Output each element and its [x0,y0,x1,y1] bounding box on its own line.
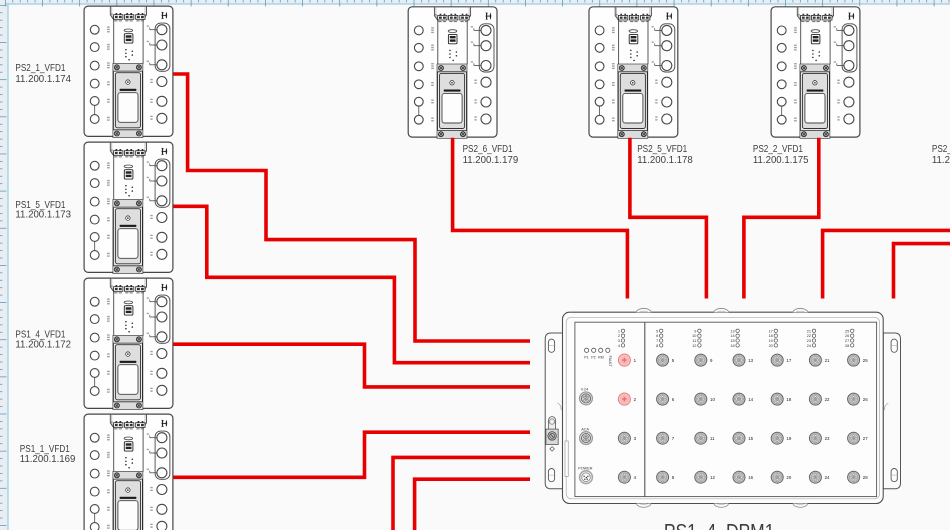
svg-text:25: 25 [863,358,868,363]
svg-text:17: 17 [786,358,791,363]
svg-text:10: 10 [692,334,696,338]
svg-text:24: 24 [825,475,830,480]
svg-text:28: 28 [863,475,868,480]
svg-text:22: 22 [807,334,811,338]
svg-text:11: 11 [710,436,715,441]
svg-text:28: 28 [845,344,849,348]
svg-text:8: 8 [656,344,658,348]
svg-text:13: 13 [748,358,753,363]
svg-text:19: 19 [786,436,791,441]
svg-text:P1: P1 [584,355,588,359]
svg-text:V.24: V.24 [581,388,588,392]
svg-text:12: 12 [692,344,696,348]
svg-text:PS2_6_VFD1: PS2_6_VFD1 [463,144,513,155]
svg-text:PS2_1_VFD1: PS2_1_VFD1 [15,63,65,74]
svg-text:11.200.1.172: 11.200.1.172 [15,339,71,350]
svg-text:14: 14 [730,334,734,338]
svg-text:3: 3 [618,339,620,343]
svg-text:2: 2 [618,334,620,338]
svg-text:1: 1 [618,329,620,333]
svg-text:11: 11 [692,339,696,343]
svg-text:5: 5 [656,329,658,333]
svg-text:11.200.1.175: 11.200.1.175 [753,155,809,166]
svg-text:26: 26 [863,397,868,402]
svg-text:11.200.1.179: 11.200.1.179 [463,155,519,166]
svg-text:20: 20 [769,344,773,348]
svg-text:RM: RM [598,355,604,359]
svg-text:18: 18 [786,397,791,402]
svg-text:4: 4 [618,344,620,348]
svg-text:PS2_3_VFD1: PS2_3_VFD1 [932,144,950,155]
svg-text:23: 23 [825,436,830,441]
svg-text:15: 15 [730,339,734,343]
svg-text:21: 21 [825,358,830,363]
svg-text:PS1_4_DPM1: PS1_4_DPM1 [664,521,775,530]
svg-text:12: 12 [710,475,715,480]
svg-text:25: 25 [845,329,849,333]
svg-text:P2: P2 [591,355,595,359]
svg-text:19: 19 [769,339,773,343]
svg-text:11.200.1.173: 11.200.1.173 [15,210,71,221]
svg-text:15: 15 [748,436,753,441]
svg-text:18: 18 [769,334,773,338]
svg-text:17: 17 [769,329,773,333]
svg-text:24: 24 [807,344,811,348]
svg-text:PS2_5_VFD1: PS2_5_VFD1 [637,144,687,155]
svg-text:16: 16 [730,344,734,348]
svg-text:13: 13 [730,329,734,333]
svg-text:9: 9 [694,329,696,333]
svg-text:14: 14 [748,397,753,402]
svg-text:11.200.1.174: 11.200.1.174 [15,74,71,85]
svg-text:11.200.1.169: 11.200.1.169 [20,454,76,465]
svg-text:27: 27 [863,436,868,441]
svg-text:FAULT: FAULT [608,356,612,368]
svg-text:21: 21 [807,329,811,333]
svg-text:PS2_2_VFD1: PS2_2_VFD1 [753,144,803,155]
svg-text:23: 23 [807,339,811,343]
svg-text:26: 26 [845,334,849,338]
svg-text:11.200.1.176: 11.200.1.176 [932,155,950,166]
svg-text:7: 7 [656,339,658,343]
svg-text:27: 27 [845,339,849,343]
svg-text:ACA: ACA [581,427,589,431]
svg-text:11.200.1.178: 11.200.1.178 [637,155,693,166]
svg-text:POWER: POWER [578,466,593,470]
svg-text:20: 20 [786,475,791,480]
svg-text:10: 10 [710,397,715,402]
svg-text:16: 16 [748,475,753,480]
svg-text:6: 6 [656,334,658,338]
svg-text:22: 22 [825,397,830,402]
